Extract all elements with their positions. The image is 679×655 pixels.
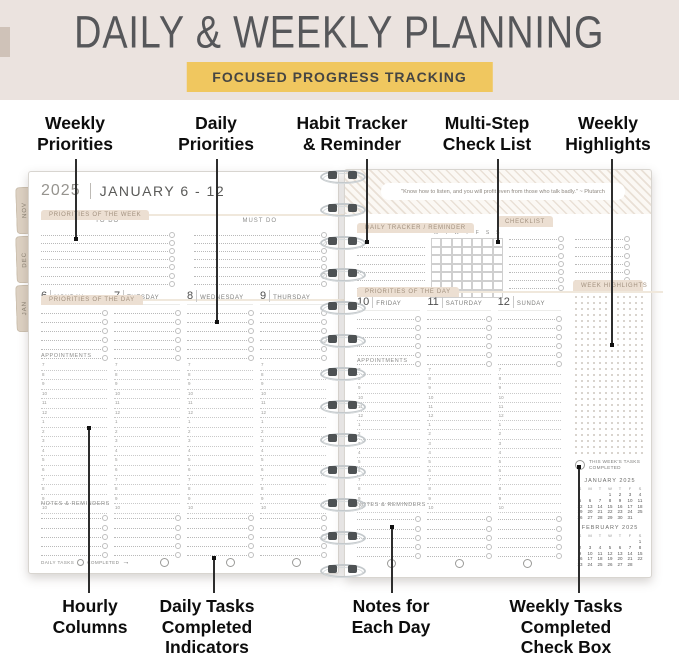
- hour-number: 5: [115, 457, 118, 462]
- hour-column: 7 8 9 10 11 12 1 2 3 4 5 6: [498, 366, 561, 513]
- writing-line: [427, 347, 490, 356]
- habit-checkbox-icon: [462, 247, 472, 256]
- callout-daily-priorities: DailyPriorities: [161, 113, 271, 154]
- hour-row: 2: [187, 428, 253, 438]
- spiral-coil-icon: [317, 200, 369, 217]
- day-name: WEDNESDAY: [200, 295, 244, 301]
- writing-line: [187, 341, 253, 350]
- hour-number: 9: [188, 381, 191, 386]
- writing-line: [498, 329, 561, 338]
- coil-crimp-left: [328, 204, 337, 212]
- daily-task-indicator: [493, 559, 561, 568]
- calendar-title: FEBRUARY 2025: [575, 525, 645, 533]
- hour-number: 7: [261, 362, 264, 367]
- coil-crimp-right: [348, 532, 357, 540]
- hour-number: 9: [42, 381, 45, 386]
- hour-row: 10: [114, 390, 180, 400]
- callout-line: Columns: [35, 617, 145, 638]
- daily-task-indicator: [135, 558, 194, 567]
- week-header: 2025 JANUARY 6 - 12: [41, 179, 326, 203]
- habit-checkbox-icon: [493, 247, 503, 256]
- callout-weekly-priorities: WeeklyPriorities: [20, 113, 130, 154]
- writing-line: [194, 260, 327, 268]
- day-lines: [427, 311, 490, 365]
- writing-line: [498, 530, 561, 539]
- calendar-cell: 27: [615, 562, 625, 568]
- hour-number: 8: [428, 486, 431, 491]
- writing-line: [427, 338, 490, 347]
- hour-row: 6: [187, 466, 253, 476]
- hour-number: 9: [428, 385, 431, 390]
- day-header: 12 SUNDAY: [498, 296, 561, 311]
- hour-number: 7: [42, 362, 45, 367]
- writing-line: [41, 236, 174, 244]
- hour-number: 4: [115, 448, 118, 453]
- calendar-grid: 1234567891011121314151617181920212223242…: [575, 492, 645, 521]
- tracker-cells: [431, 264, 503, 273]
- writing-line: [194, 277, 327, 285]
- quote-box: "Know how to listen, and you will profit…: [381, 183, 625, 200]
- hour-row: 7: [187, 476, 253, 486]
- day-name: FRIDAY: [376, 301, 401, 307]
- hour-row: 11: [498, 403, 561, 412]
- hour-row: 12: [498, 412, 561, 421]
- calendar-cell: 29: [605, 515, 615, 521]
- daily-task-indicators: [357, 559, 561, 568]
- callout-line: Multi-Step: [427, 113, 547, 134]
- hour-number: 7: [188, 477, 191, 482]
- writing-line: [498, 539, 561, 548]
- hour-number: 1: [188, 419, 191, 424]
- writing-line: [114, 332, 180, 341]
- calendar-cell: 25: [595, 562, 605, 568]
- writing-line: [498, 548, 561, 557]
- spiral-coil-icon: [317, 430, 369, 447]
- hour-number: 12: [188, 410, 193, 415]
- indicator-circle-icon: [160, 558, 169, 567]
- calendar-cell: [635, 515, 645, 521]
- callout-notes-each-day: Notes forEach Day: [331, 596, 451, 637]
- mustdo-lines: [194, 228, 327, 285]
- habit-checkbox-icon: [462, 238, 472, 247]
- hour-number: 5: [428, 459, 431, 464]
- hour-number: 8: [499, 376, 502, 381]
- hour-column: 7 8 9 10 11 12 1 2 3 4 5 6: [187, 361, 253, 514]
- hour-number: 7: [428, 477, 431, 482]
- task-circle-icon: [77, 559, 84, 566]
- callout-habit-tracker: Habit Tracker& Reminder: [282, 113, 422, 154]
- hour-number: 4: [499, 450, 502, 455]
- weekly-tasks-completed: THIS WEEK'S TASKS COMPLETED: [575, 459, 645, 471]
- coil-crimp-left: [328, 335, 337, 343]
- tracker-row: [431, 238, 503, 247]
- hour-row: 10: [427, 394, 490, 403]
- day-column: 11 SATURDAY: [427, 296, 490, 365]
- pointer-multi-step-checklist: [497, 159, 499, 242]
- writing-line: [114, 529, 180, 538]
- hour-number: 7: [499, 477, 502, 482]
- notes-column: [41, 510, 107, 556]
- writing-line: [575, 232, 629, 240]
- hour-number: 8: [42, 486, 45, 491]
- appointments-grid: 7 8 9 10 11 12 1 2 3 4 5 6: [41, 361, 326, 514]
- hour-number: 12: [499, 413, 504, 418]
- subtitle-badge: FOCUSED PROGRESS TRACKING: [186, 62, 492, 92]
- hour-number: 1: [428, 422, 431, 427]
- habit-checkbox-icon: [431, 255, 441, 264]
- priorities-week-pill: PRIORITIES OF THE WEEK: [41, 210, 149, 221]
- calendar-cell: 31: [625, 515, 635, 521]
- hour-row: 1: [498, 421, 561, 430]
- habit-checkbox-icon: [493, 255, 503, 264]
- checklist-pill: CHECKLIST: [497, 216, 553, 227]
- hour-number: 3: [499, 441, 502, 446]
- writing-line: [498, 338, 561, 347]
- spiral-coil-icon: [317, 462, 369, 479]
- spiral-coil-icon: [317, 233, 369, 250]
- hour-row: 6: [427, 467, 490, 476]
- calendar-title: JANUARY 2025: [575, 478, 645, 486]
- daily-tasks-footer: DAILY TASKS COMPLETED →: [41, 556, 326, 568]
- pointer-daily-tasks-indicators: [213, 558, 215, 593]
- callout-line: Weekly Tasks: [501, 596, 631, 617]
- hour-row: 8: [427, 375, 490, 384]
- writing-line: [114, 341, 180, 350]
- weekly-tasks-text: THIS WEEK'S TASKS COMPLETED: [589, 459, 640, 471]
- coil-crimp-right: [348, 302, 357, 310]
- hour-number: 2: [261, 429, 264, 434]
- habit-checkbox-icon: [482, 255, 492, 264]
- hour-row: 2: [41, 428, 107, 438]
- hour-row: 4: [187, 447, 253, 457]
- indicator-circle-icon: [226, 558, 235, 567]
- hour-row: 1: [187, 418, 253, 428]
- day-lines: [498, 311, 561, 365]
- notes-column: [427, 511, 490, 557]
- week-title: JANUARY 6 - 12: [100, 183, 226, 199]
- hour-number: 9: [499, 385, 502, 390]
- habit-checkbox-icon: [452, 264, 462, 273]
- hour-number: 8: [188, 372, 191, 377]
- pointer-notes-each-day: [391, 527, 393, 593]
- calendar-grid: 1234567891011121314151617181920212223242…: [575, 539, 645, 568]
- hour-row: 1: [114, 418, 180, 428]
- pointer-hourly-columns: [88, 428, 90, 593]
- tracker-day-letter: S: [482, 230, 492, 236]
- callout-weekly-highlights: WeeklyHighlights: [553, 113, 663, 154]
- notes-column: [114, 510, 180, 556]
- day-name: SUNDAY: [517, 301, 545, 307]
- hour-number: 2: [499, 431, 502, 436]
- calendar-month: JANUARY: [584, 478, 616, 484]
- hour-number: 8: [42, 372, 45, 377]
- hour-row: 6: [114, 466, 180, 476]
- habit-checkbox-icon: [472, 247, 482, 256]
- mustdo-header: MUST DO: [194, 218, 327, 228]
- coil-crimp-left: [328, 368, 337, 376]
- hour-row: 8: [41, 371, 107, 381]
- hour-row: 9: [427, 384, 490, 393]
- callout-line: Highlights: [553, 134, 663, 155]
- habit-checkbox-icon: [452, 255, 462, 264]
- writing-line: [187, 332, 253, 341]
- callout-line: Each Day: [331, 617, 451, 638]
- writing-line: [509, 248, 563, 256]
- tracker-row: [431, 247, 503, 256]
- hour-row: 2: [498, 430, 561, 439]
- spiral-coil-icon: [317, 331, 369, 348]
- daily-tracker-pill: DAILY TRACKER / REMINDER: [357, 223, 474, 234]
- coil-crimp-right: [348, 237, 357, 245]
- writing-line: [194, 244, 327, 252]
- pointer-habit-tracker: [366, 159, 368, 242]
- hour-row: 8: [498, 485, 561, 494]
- week-priorities-columns: TO DO MUST DO: [41, 218, 326, 285]
- week-highlights-section: WEEK HIGHLIGHTS: [573, 280, 643, 291]
- calendar-cell: [635, 562, 645, 568]
- hour-number: 6: [42, 467, 45, 472]
- callout-line: Check Box: [501, 637, 631, 655]
- habit-checkbox-icon: [472, 264, 482, 273]
- habit-checkbox-icon: [462, 264, 472, 273]
- pointer-daily-priorities: [216, 159, 218, 322]
- hour-row: 8: [187, 485, 253, 495]
- calendar-year: 2025: [622, 525, 638, 531]
- day-lines: [41, 305, 107, 359]
- writing-line: [187, 529, 253, 538]
- hour-row: 8: [114, 485, 180, 495]
- hour-row: 5: [427, 458, 490, 467]
- habit-checkbox-icon: [482, 247, 492, 256]
- hour-row: 9: [114, 380, 180, 390]
- hour-row: 10: [187, 390, 253, 400]
- hour-row: 3: [114, 437, 180, 447]
- coil-crimp-right: [348, 204, 357, 212]
- hour-number: 8: [261, 486, 264, 491]
- day-name: THURSDAY: [273, 295, 310, 301]
- hour-number: 9: [428, 496, 431, 501]
- hour-number: 4: [42, 448, 45, 453]
- hour-number: 12: [261, 410, 266, 415]
- hour-row: 3: [498, 440, 561, 449]
- day-header: 8 WEDNESDAY: [187, 290, 253, 305]
- writing-line: [41, 519, 107, 528]
- spiral-coil-icon: [317, 397, 369, 414]
- callout-line: Daily: [161, 113, 271, 134]
- writing-line: [41, 268, 174, 276]
- hour-number: 9: [261, 496, 264, 501]
- writing-line: [41, 244, 174, 252]
- month-tab-label: DEC: [21, 252, 28, 268]
- writing-line: [187, 510, 253, 519]
- writing-line: [41, 529, 107, 538]
- spiral-coil-icon: [317, 528, 369, 545]
- hour-row: 12: [41, 409, 107, 419]
- hour-number: 7: [42, 477, 45, 482]
- day-number: 9: [260, 290, 270, 302]
- hour-number: 11: [188, 400, 193, 405]
- hour-row: 7: [41, 476, 107, 486]
- hour-row: 12: [427, 412, 490, 421]
- writing-line: [509, 257, 563, 265]
- hour-number: 8: [261, 372, 264, 377]
- hour-column: 7 8 9 10 11 12 1 2 3 4 5 6: [41, 361, 107, 514]
- hour-number: 5: [499, 459, 502, 464]
- habit-checkbox-icon: [452, 238, 462, 247]
- writing-line: [41, 323, 107, 332]
- hour-row: 4: [114, 447, 180, 457]
- planner-product-image: DAILY & WEEKLY PLANNING FOCUSED PROGRESS…: [0, 0, 679, 655]
- coil-crimp-left: [328, 499, 337, 507]
- hour-number: 6: [261, 467, 264, 472]
- hour-row: 7: [498, 366, 561, 375]
- day-number: 12: [498, 296, 514, 308]
- hour-row: 12: [187, 409, 253, 419]
- hour-number: 10: [115, 391, 120, 396]
- writing-line: [575, 248, 629, 256]
- calendar-year: 2025: [619, 478, 635, 484]
- hour-row: 8: [114, 371, 180, 381]
- callout-line: Weekly: [20, 113, 130, 134]
- hour-row: 7: [114, 476, 180, 486]
- hour-number: 6: [428, 468, 431, 473]
- writing-line: [194, 252, 327, 260]
- hour-row: 11: [41, 399, 107, 409]
- hour-number: 9: [115, 381, 118, 386]
- hour-number: 2: [428, 431, 431, 436]
- daily-tasks-completed-legend: DAILY TASKS COMPLETED →: [41, 559, 128, 566]
- coil-crimp-right: [348, 368, 357, 376]
- hour-row: 7: [427, 476, 490, 485]
- writing-line: [41, 538, 107, 547]
- writing-line: [41, 332, 107, 341]
- hour-number: 10: [42, 391, 47, 396]
- spiral-coil-icon: [317, 561, 369, 578]
- habit-checkbox-icon: [482, 264, 492, 273]
- hour-row: 12: [114, 409, 180, 419]
- writing-line: [427, 539, 490, 548]
- callout-multi-step-checklist: Multi-StepCheck List: [427, 113, 547, 154]
- writing-line: [41, 314, 107, 323]
- writing-line: [498, 320, 561, 329]
- month-tab-label: NOV: [21, 202, 28, 218]
- hour-number: 9: [188, 496, 191, 501]
- daily-tasks-text: DAILY TASKS: [41, 560, 74, 565]
- callout-line: Priorities: [20, 134, 130, 155]
- writing-line: [194, 236, 327, 244]
- pointer-weekly-priorities: [75, 159, 77, 239]
- writing-line: [187, 323, 253, 332]
- hour-column: 7 8 9 10 11 12 1 2 3 4 5 6: [427, 366, 490, 513]
- callout-line: Habit Tracker: [282, 113, 422, 134]
- callout-line: Indicators: [142, 637, 272, 655]
- indicator-circle-icon: [292, 558, 301, 567]
- habit-checkbox-icon: [431, 264, 441, 273]
- hour-row: 5: [114, 456, 180, 466]
- hour-number: 8: [115, 486, 118, 491]
- hour-number: 6: [499, 468, 502, 473]
- calendar-cell: 23: [575, 562, 585, 568]
- notes-grid: [41, 510, 326, 556]
- writing-line: [187, 305, 253, 314]
- habit-checkbox-icon: [441, 264, 451, 273]
- writing-line: [498, 347, 561, 356]
- header-banner: DAILY & WEEKLY PLANNING FOCUSED PROGRESS…: [0, 0, 679, 100]
- habit-checkbox-icon: [431, 247, 441, 256]
- hour-row: 6: [498, 467, 561, 476]
- notes-label: NOTES & REMINDERS: [41, 501, 326, 507]
- hour-row: 10: [41, 390, 107, 400]
- completed-text: COMPLETED: [87, 560, 119, 565]
- habit-checkbox-icon: [431, 238, 441, 247]
- hour-number: 6: [115, 467, 118, 472]
- writing-line: [114, 538, 180, 547]
- hour-number: 10: [261, 391, 266, 396]
- hour-number: 4: [188, 448, 191, 453]
- coil-crimp-left: [328, 171, 337, 179]
- hour-number: 2: [115, 429, 118, 434]
- hour-number: 8: [115, 372, 118, 377]
- hour-row: 9: [187, 380, 253, 390]
- hour-row: 6: [41, 466, 107, 476]
- notes-grid: [357, 511, 561, 557]
- hour-number: 5: [261, 457, 264, 462]
- hour-number: 7: [115, 362, 118, 367]
- callout-daily-tasks-indicators: Daily TasksCompletedIndicators: [142, 596, 272, 655]
- notes-column: [187, 510, 253, 556]
- tracker-cells: [431, 247, 503, 256]
- writing-line: [41, 252, 174, 260]
- todo-lines: [41, 228, 174, 285]
- hour-number: 9: [261, 381, 264, 386]
- writing-line: [427, 329, 490, 338]
- quote-text: "Know how to listen, and you will profit…: [401, 189, 605, 195]
- hour-number: 11: [428, 404, 433, 409]
- hour-row: 2: [427, 430, 490, 439]
- hour-number: 1: [115, 419, 118, 424]
- writing-line: [187, 538, 253, 547]
- calendar-month: FEBRUARY: [582, 525, 620, 531]
- habit-checkbox-icon: [441, 255, 451, 264]
- hour-number: 9: [42, 496, 45, 501]
- week-highlights-pill: WEEK HIGHLIGHTS: [573, 280, 643, 291]
- hour-number: 7: [115, 477, 118, 482]
- writing-line: [427, 511, 490, 520]
- writing-line: [41, 228, 174, 236]
- callout-weekly-tasks-checkbox: Weekly TasksCompletedCheck Box: [501, 596, 631, 655]
- hour-number: 7: [261, 477, 264, 482]
- todo-column: TO DO: [41, 218, 174, 285]
- hour-number: 4: [261, 448, 264, 453]
- daily-task-indicator: [201, 558, 260, 567]
- hour-row: 5: [187, 456, 253, 466]
- coil-crimp-right: [348, 434, 357, 442]
- hour-row: 8: [41, 485, 107, 495]
- priorities-week-section: PRIORITIES OF THE WEEK: [41, 203, 350, 216]
- hour-row: 7: [187, 361, 253, 371]
- hour-row: 4: [41, 447, 107, 457]
- hour-number: 2: [188, 429, 191, 434]
- hour-number: 1: [42, 419, 45, 424]
- hour-number: 8: [499, 486, 502, 491]
- writing-line: [114, 305, 180, 314]
- hour-row: 1: [427, 421, 490, 430]
- writing-line: [41, 260, 174, 268]
- callout-line: Hourly: [35, 596, 145, 617]
- writing-line: [41, 277, 174, 285]
- day-lines: [114, 305, 180, 359]
- hour-number: 12: [115, 410, 120, 415]
